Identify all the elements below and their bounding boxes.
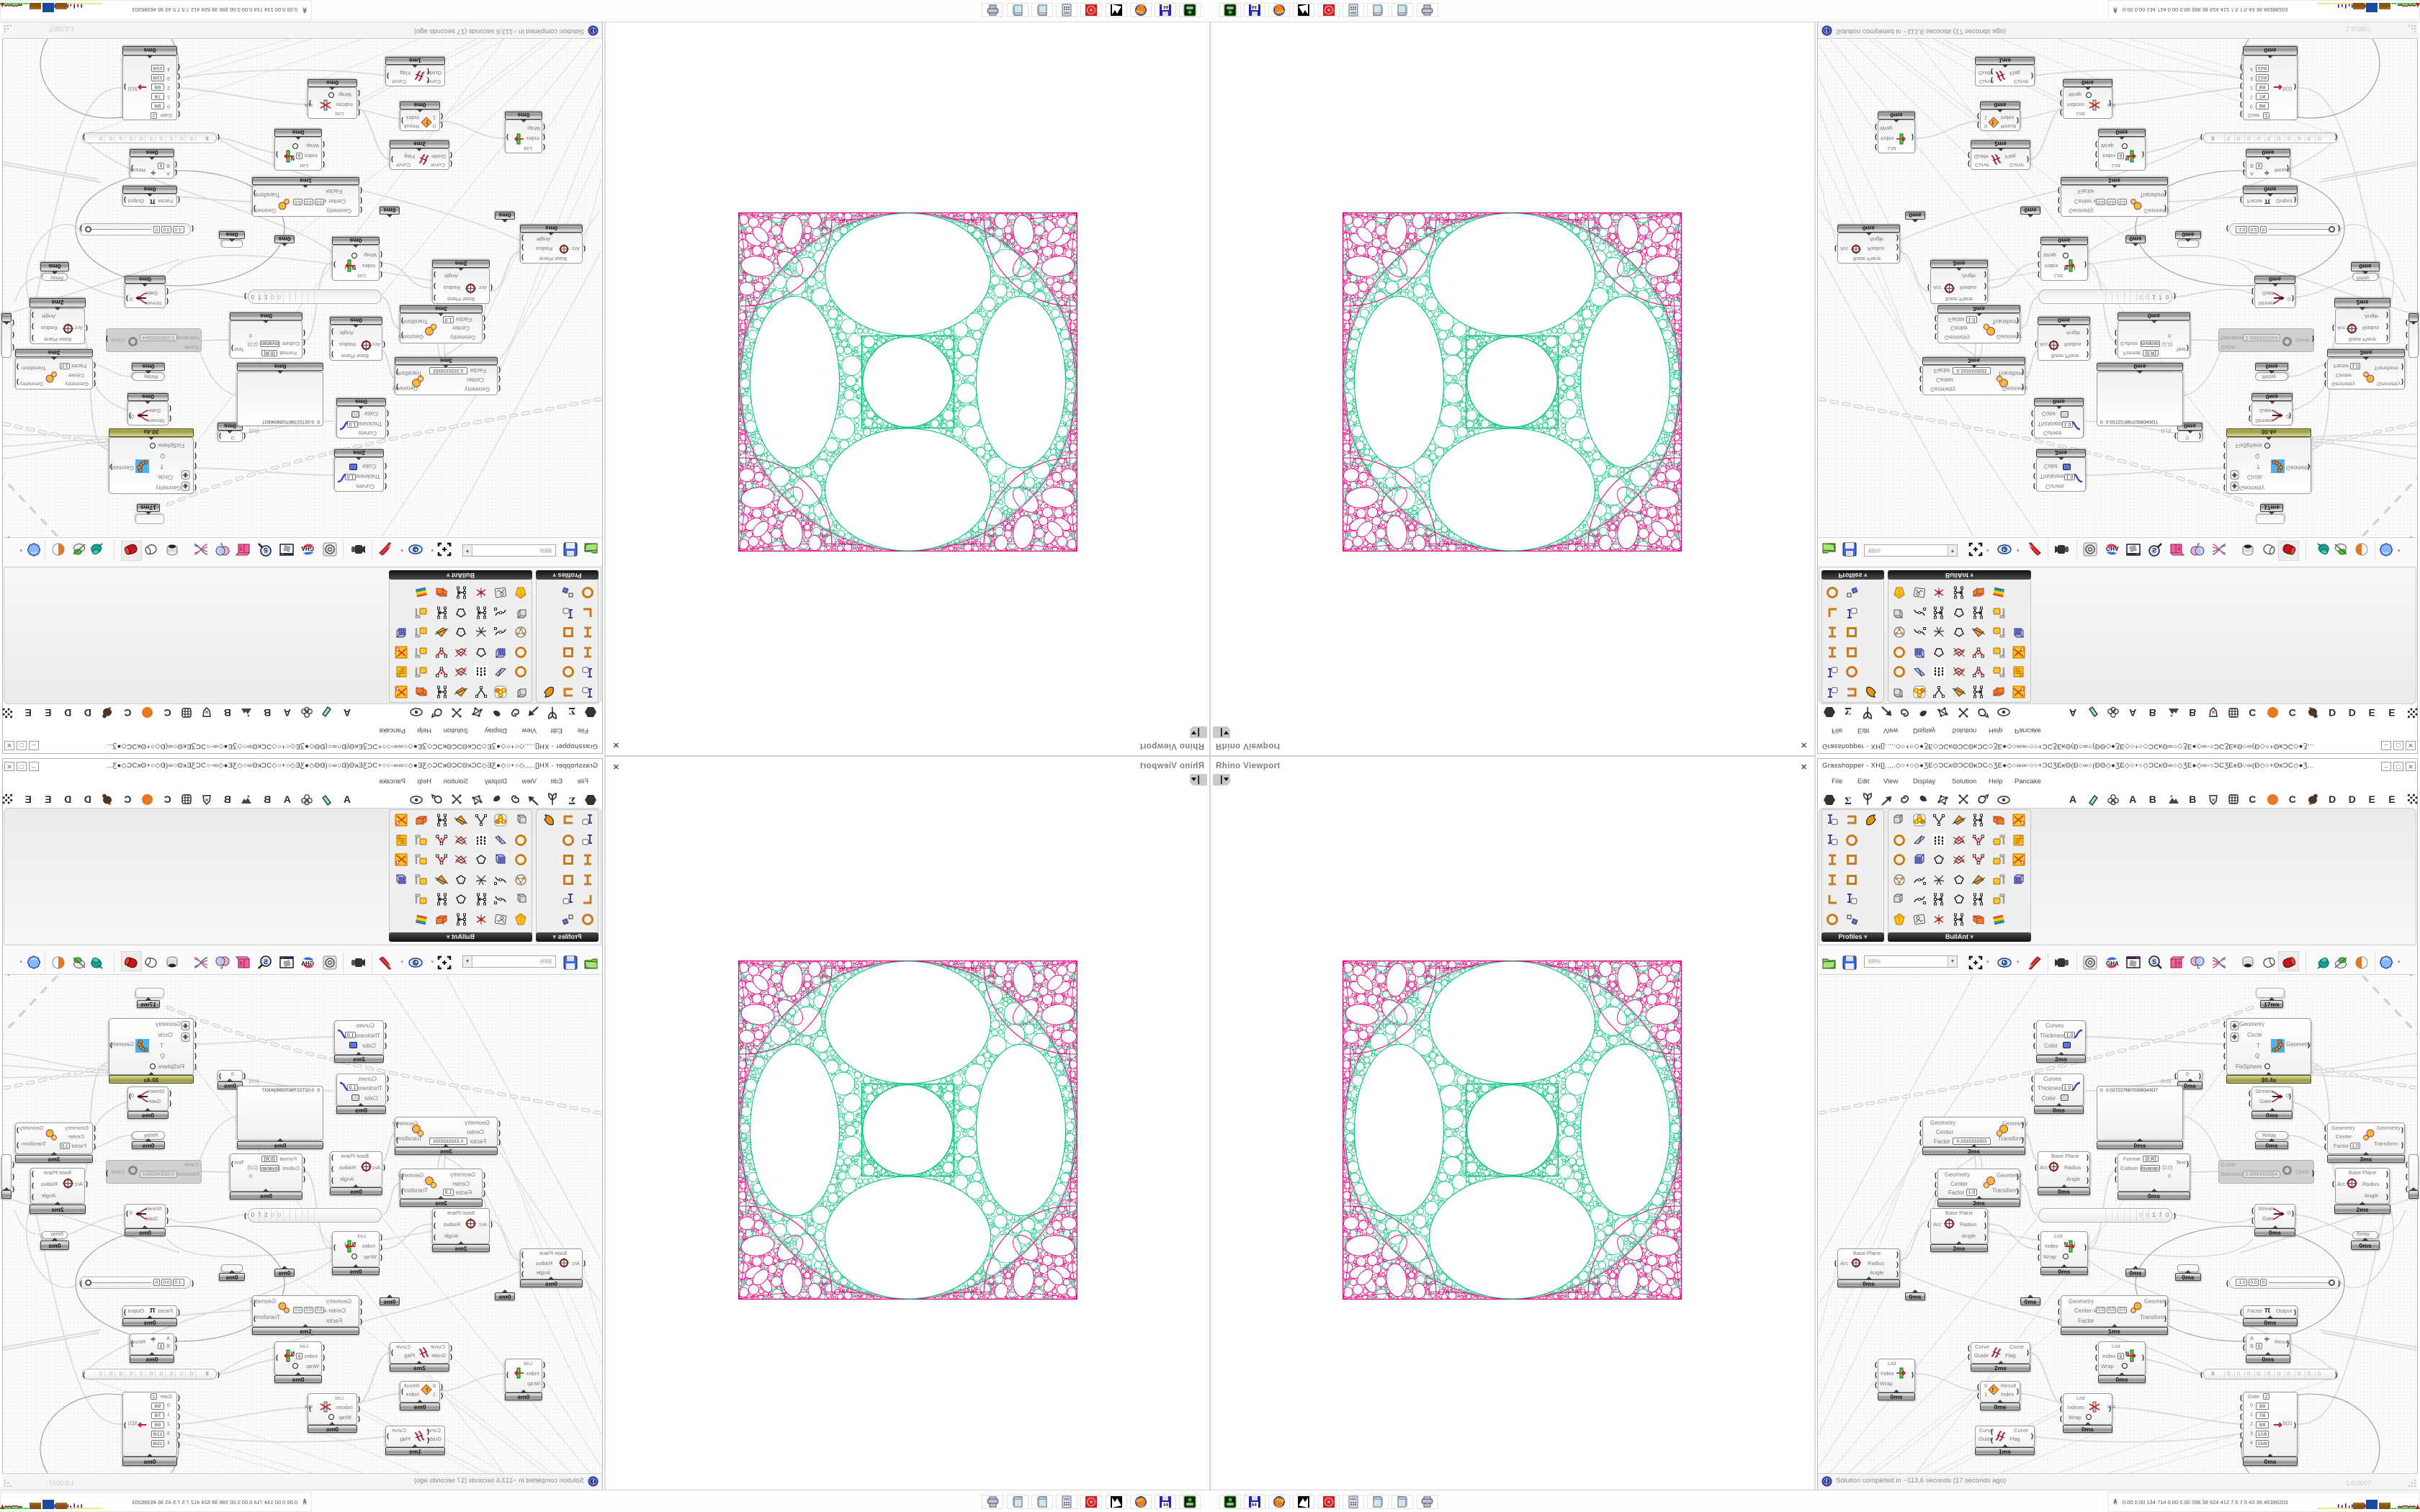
svg-text:?: ? [2177, 961, 2181, 968]
svg-text:!: ! [593, 1478, 595, 1485]
svg-text:Σ: Σ [1845, 796, 1852, 807]
svg-text:S: S [264, 546, 268, 554]
svg-text:GHA: GHA [2106, 960, 2119, 967]
svg-text:N: N [2064, 265, 2068, 270]
svg-text:N: N [352, 1242, 356, 1247]
svg-text:!: ! [1826, 1478, 1828, 1485]
svg-text:i: i [344, 1242, 346, 1247]
svg-text:i: i [2074, 265, 2076, 270]
svg-text:?: ? [2177, 544, 2181, 551]
svg-text:64: 64 [1252, 1503, 1257, 1508]
svg-text:!: ! [1992, 119, 1994, 125]
svg-text:!: ! [426, 1387, 429, 1393]
svg-text:?: ? [239, 544, 243, 551]
svg-text:GHA: GHA [301, 960, 314, 967]
svg-text:i: i [2074, 1242, 2076, 1247]
svg-text:S: S [264, 958, 268, 966]
svg-text:N: N [2125, 1351, 2129, 1356]
svg-text:i: i [344, 265, 346, 270]
svg-text:Σ: Σ [568, 705, 575, 716]
svg-text:!: ! [1826, 27, 1828, 34]
svg-text:GHA: GHA [2106, 545, 2119, 552]
svg-text:?: ? [239, 961, 243, 968]
svg-text:N: N [2064, 1242, 2068, 1247]
svg-text:Σ: Σ [1845, 705, 1852, 716]
svg-text:Σ: Σ [568, 796, 575, 807]
svg-text:S: S [2152, 958, 2156, 966]
svg-text:N: N [291, 1351, 295, 1356]
svg-text:!: ! [426, 119, 429, 125]
svg-text:GHA: GHA [301, 545, 314, 552]
svg-text:64: 64 [1163, 4, 1168, 9]
svg-text:64: 64 [1163, 1503, 1168, 1508]
svg-text:N: N [291, 156, 295, 161]
svg-text:N: N [2125, 156, 2129, 161]
svg-text:S: S [2152, 546, 2156, 554]
svg-text:64: 64 [1252, 4, 1257, 9]
svg-text:!: ! [1992, 1387, 1994, 1393]
svg-text:N: N [352, 265, 356, 270]
svg-text:!: ! [593, 27, 595, 34]
